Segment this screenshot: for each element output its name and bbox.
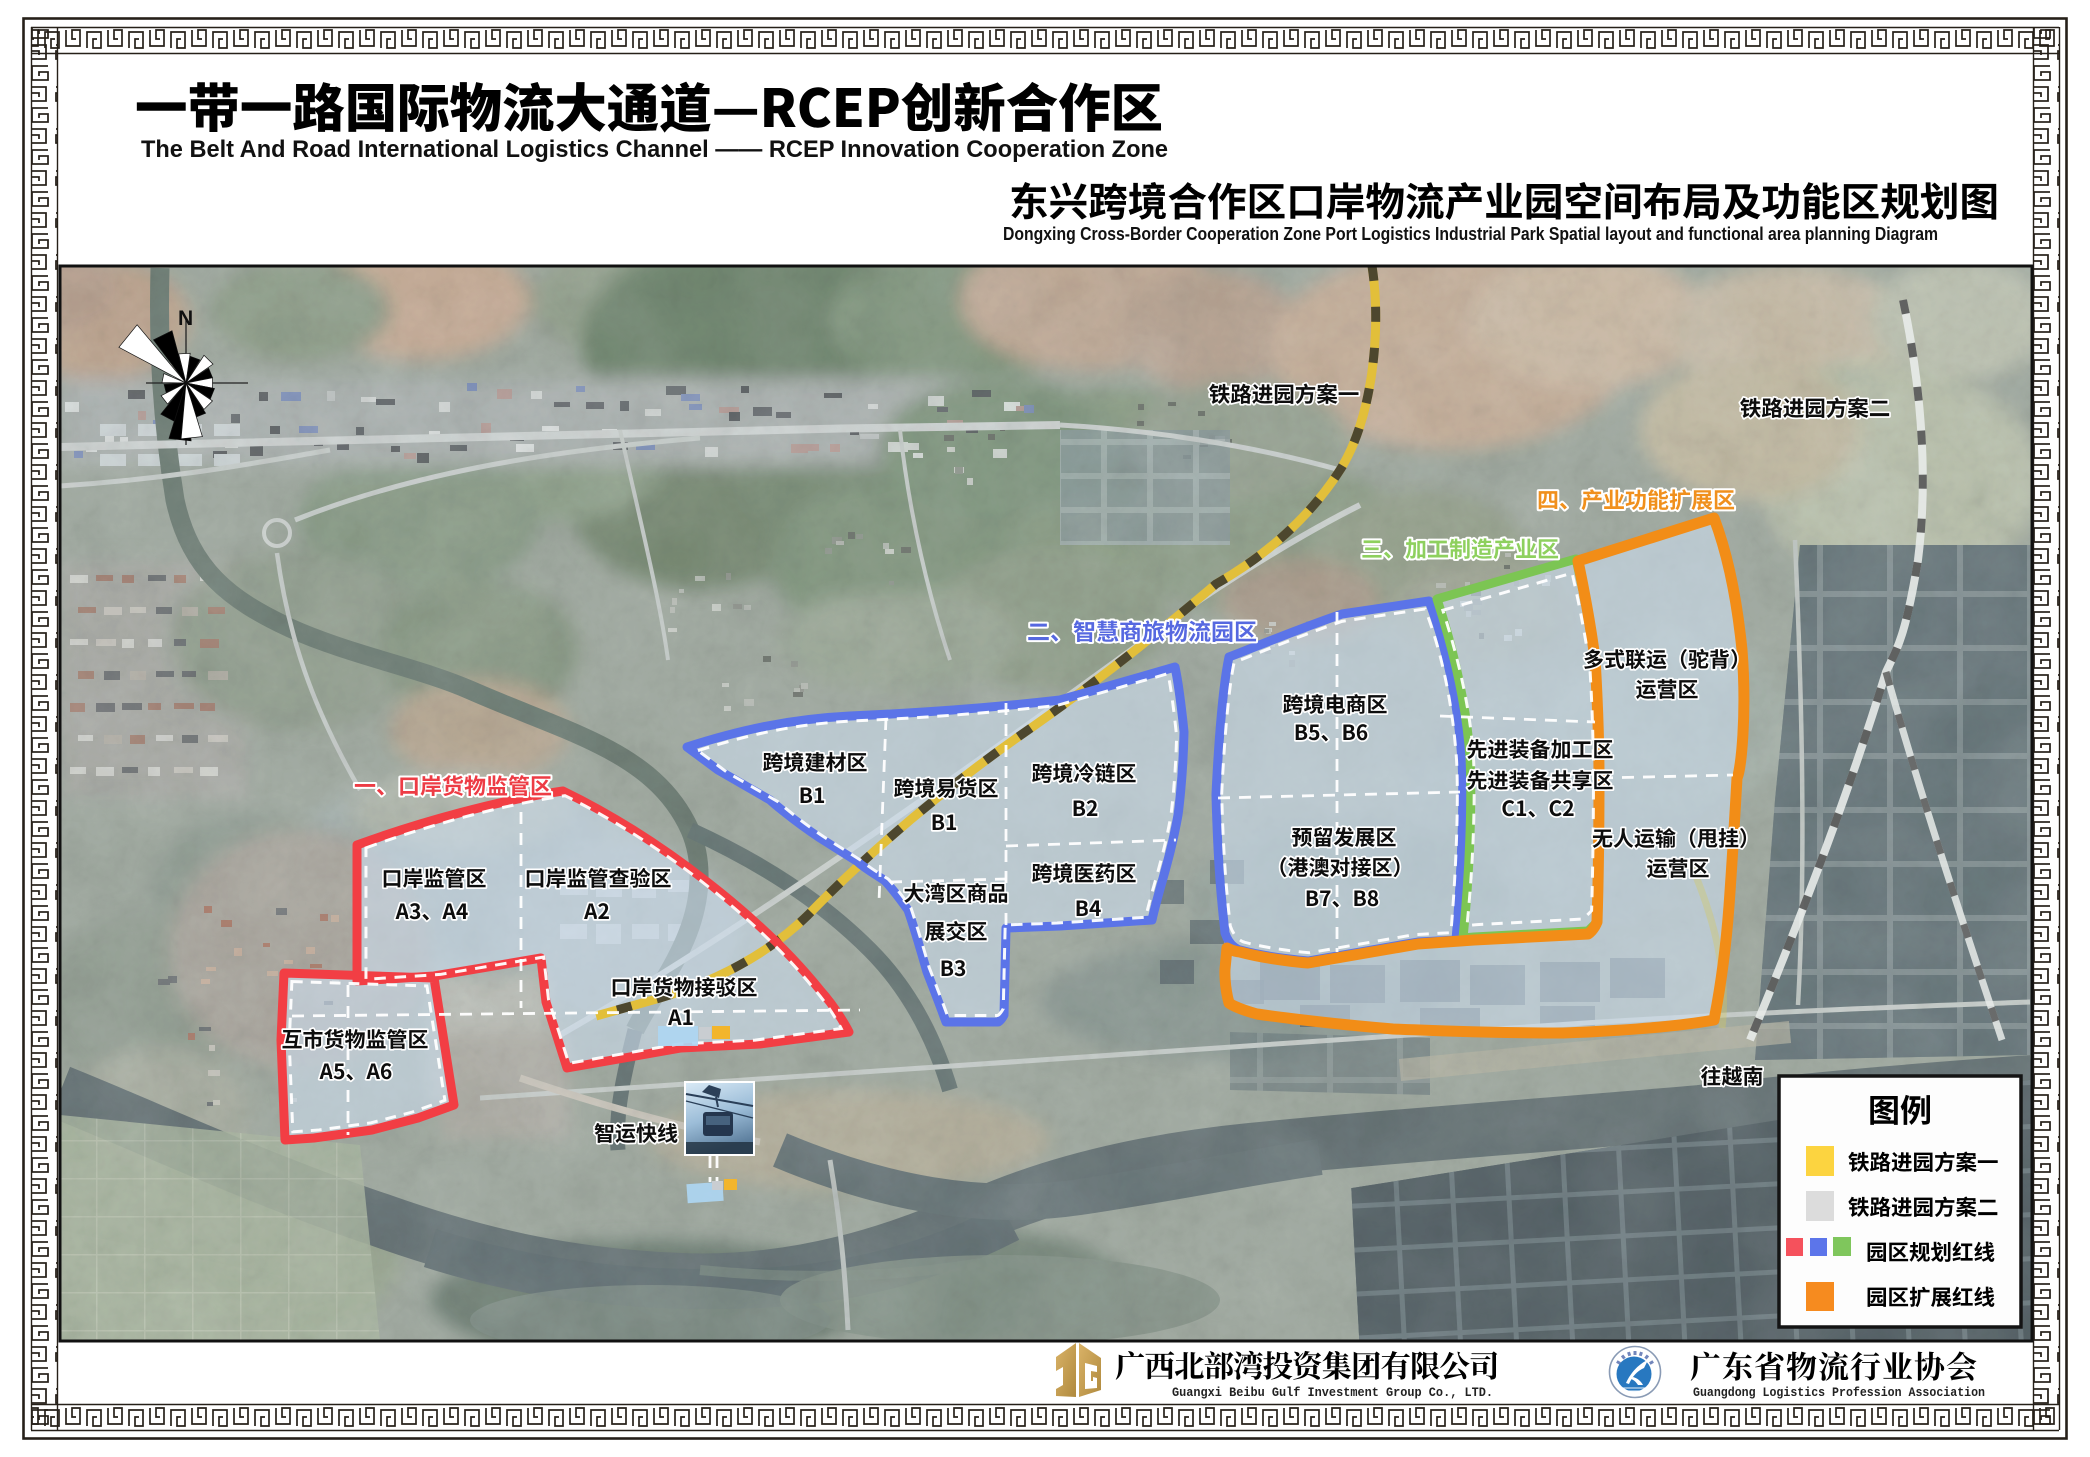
svg-text:Guangdong Logistics Profession: Guangdong Logistics Profession Associati… [1693, 1385, 1985, 1400]
svg-text:Dongxing Cross-Border Cooperat: Dongxing Cross-Border Cooperation Zone P… [1003, 224, 1938, 244]
svg-text:Guangxi Beibu Gulf Investment: Guangxi Beibu Gulf Investment Group Co.,… [1172, 1385, 1493, 1400]
svg-text:N: N [178, 307, 193, 330]
svg-text:The Belt And Road Internationa: The Belt And Road International Logistic… [141, 136, 1168, 163]
